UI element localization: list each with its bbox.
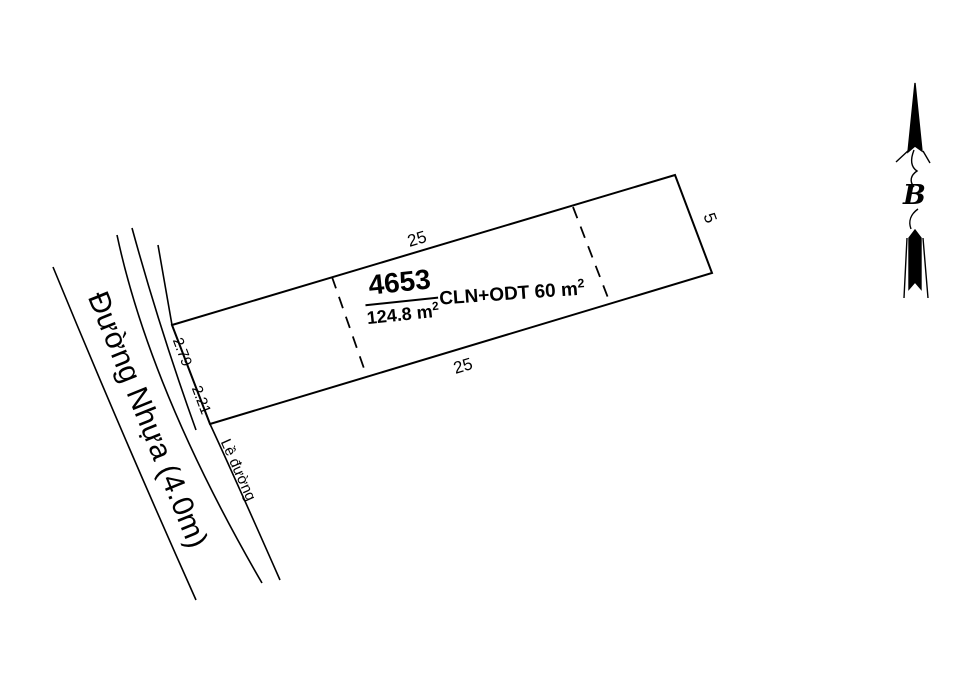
cadastral-plot-map: Đường Nhựa (4.0m) Lề đường 2.79 2.21 25 … [0,0,964,684]
north-arrow-hook [910,209,918,229]
north-arrow-letter: B [903,180,926,211]
land-use-superscript: 2 [577,276,585,290]
parcel-label-stack: 4653 124.8 m2 [362,263,440,329]
north-arrow-top-needle [908,83,922,152]
map-line-drawing [0,0,964,684]
north-arrow-bottom-needle [909,230,921,289]
parcel-area-superscript: 2 [431,300,439,314]
road-left-edge-line [53,267,196,600]
